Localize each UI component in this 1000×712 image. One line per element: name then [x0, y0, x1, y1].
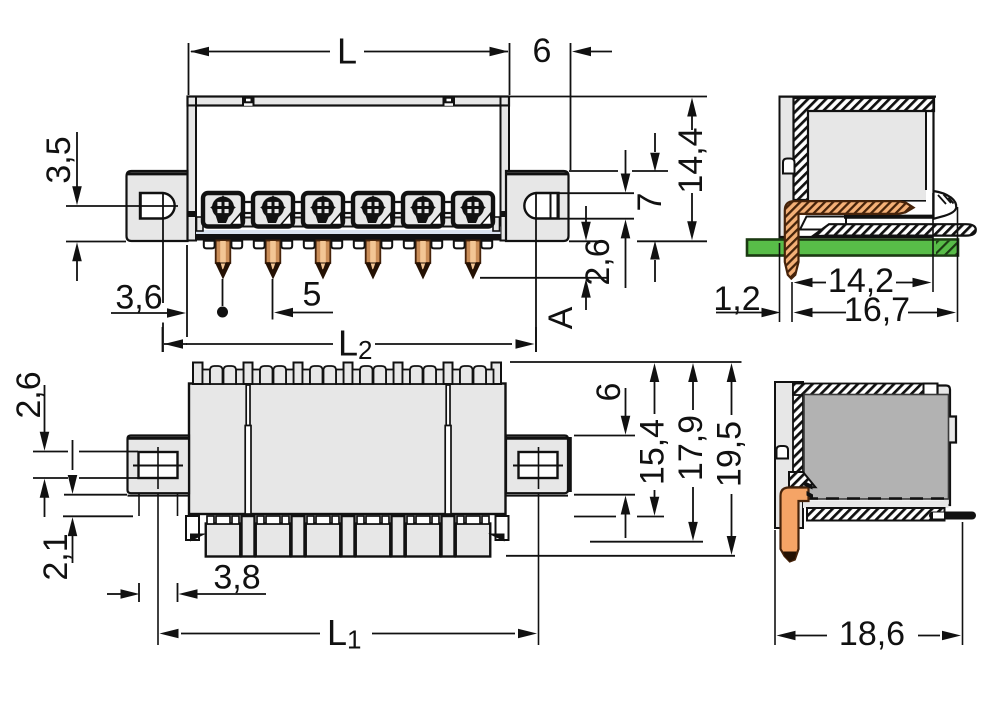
- svg-text:6: 6: [590, 383, 628, 402]
- svg-text:1,2: 1,2: [713, 280, 760, 318]
- svg-text:5: 5: [303, 276, 322, 314]
- svg-text:L: L: [337, 31, 357, 72]
- svg-text:6: 6: [533, 32, 552, 70]
- svg-text:7: 7: [631, 193, 669, 212]
- svg-text:3,5: 3,5: [40, 136, 78, 183]
- svg-text:19,5: 19,5: [711, 421, 749, 487]
- svg-text:2,1: 2,1: [37, 533, 75, 580]
- svg-text:18,6: 18,6: [839, 615, 905, 653]
- svg-text:2,6: 2,6: [10, 371, 48, 418]
- svg-text:3,8: 3,8: [213, 559, 260, 597]
- svg-text:A: A: [542, 306, 580, 329]
- svg-text:3,6: 3,6: [115, 279, 162, 317]
- svg-text:16,7: 16,7: [844, 291, 910, 329]
- svg-text:17,9: 17,9: [672, 415, 710, 481]
- svg-text:14,4: 14,4: [672, 127, 710, 193]
- svg-text:15,4: 15,4: [634, 419, 672, 485]
